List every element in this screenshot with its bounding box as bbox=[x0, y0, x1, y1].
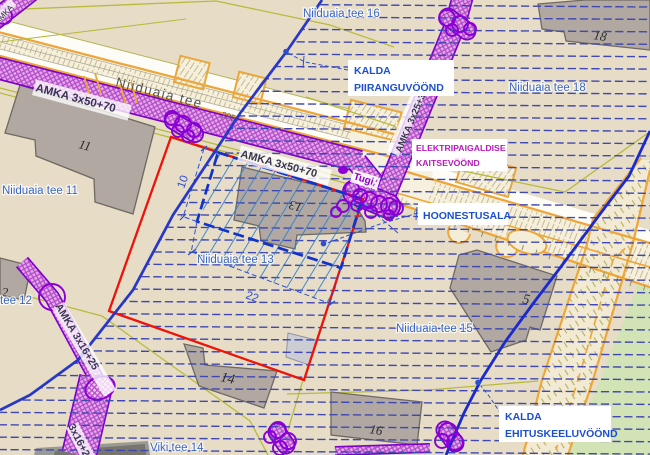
svg-text:Niiduaia tee 11: Niiduaia tee 11 bbox=[2, 185, 78, 197]
svg-text:KALDA: KALDA bbox=[505, 411, 542, 423]
svg-text:Niiduaia tee 18: Niiduaia tee 18 bbox=[509, 82, 586, 94]
svg-text:KAITSEVÖÖND: KAITSEVÖÖND bbox=[416, 158, 480, 168]
svg-text:ELEKTRIPAIGALDISE: ELEKTRIPAIGALDISE bbox=[416, 143, 506, 153]
svg-text:EHITUSKEELUVÖÖND: EHITUSKEELUVÖÖND bbox=[505, 427, 618, 440]
svg-text:Niiduaia tee 16: Niiduaia tee 16 bbox=[303, 8, 380, 20]
svg-text:PIIRANGUVÖÖND: PIIRANGUVÖÖND bbox=[354, 81, 444, 94]
svg-text:Niiduaia tee 15: Niiduaia tee 15 bbox=[396, 323, 473, 335]
svg-text:KALDA: KALDA bbox=[354, 65, 391, 77]
svg-text:Niiduaia tee 13: Niiduaia tee 13 bbox=[197, 254, 274, 266]
svg-text:HOONESTUSALA: HOONESTUSALA bbox=[423, 210, 512, 222]
svg-text:Viki tee 14: Viki tee 14 bbox=[150, 442, 204, 454]
svg-text:tee 12: tee 12 bbox=[0, 295, 32, 307]
